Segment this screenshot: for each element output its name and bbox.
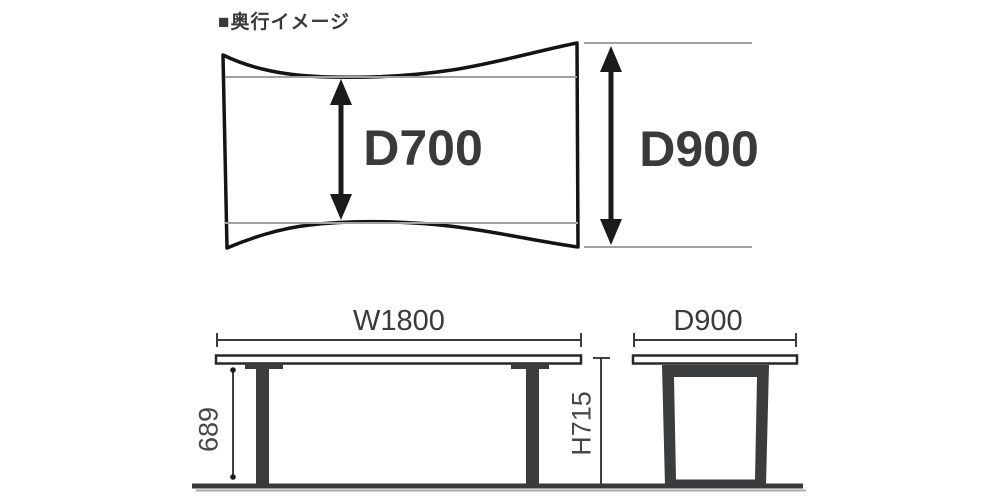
front-right-leg [526, 365, 539, 486]
d900-arrow [600, 46, 622, 245]
d900-side-dimension-label: D900 [638, 307, 778, 336]
d700-dimension-label: D700 [352, 123, 494, 173]
side-tabletop-slab [633, 356, 797, 364]
w1800-dimension-label: W1800 [329, 307, 469, 336]
dimension-diagram: ■奥行イメージ D700 D900 [0, 0, 1000, 500]
leg-height-dimension-line [230, 367, 236, 480]
side-leg-frame [662, 365, 769, 486]
leg-height-dimension-label: 689 [196, 390, 223, 470]
tabletop-plan-drawing [0, 0, 1000, 280]
h715-dimension-label: H715 [569, 384, 596, 464]
elevation-drawings [0, 280, 1000, 500]
d900-dimension-label: D900 [628, 124, 770, 174]
front-left-leg [256, 365, 269, 486]
front-tabletop-slab [216, 356, 581, 364]
